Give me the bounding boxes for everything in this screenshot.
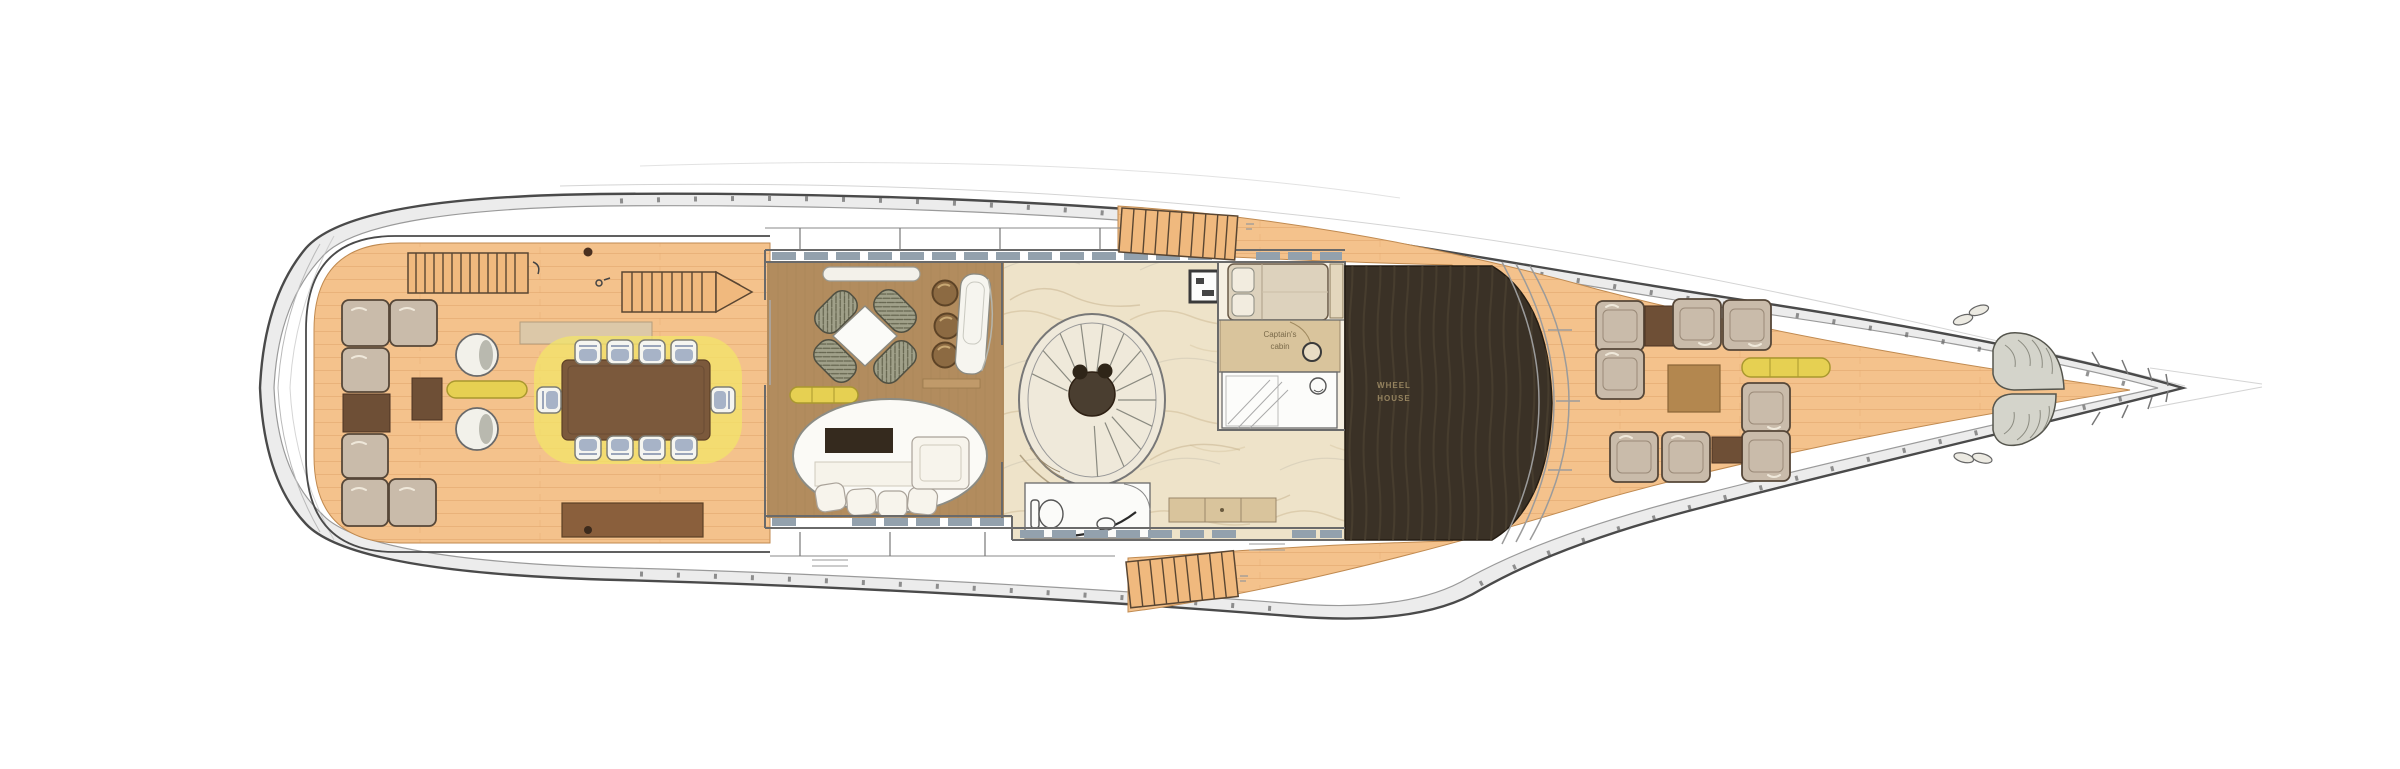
foredeck-yellow-bench [1742,358,1830,377]
sofa-connector-table [1712,437,1742,463]
aft-stairs-down [408,253,539,293]
yacht-deck-plan-page: Captain's cabin WHEEL HOUSE [0,0,2400,769]
foredeck-coffee-table [1668,365,1720,412]
captain-bed [1228,264,1328,320]
wheelhouse-label-2: HOUSE [1377,394,1410,403]
side-stairway-top [1119,208,1238,260]
captain-ensuite [1222,372,1337,428]
day-head [1025,483,1150,538]
captain-cabin-label-2: cabin [1270,342,1289,351]
captain-desk-area: Captain's cabin [1220,320,1340,372]
sofa-corner-table [343,394,390,432]
toilet-icon [1031,500,1063,528]
aft-round-chair [456,334,498,376]
aft-deck [306,236,770,552]
tv-cabinet [825,428,893,453]
dining-table [562,360,710,440]
aft-round-chair [456,408,498,450]
spiral-center-post [1069,372,1115,416]
wheelhouse-label-1: WHEEL [1377,381,1411,390]
aft-cabinet [562,503,703,537]
captain-cabin-label-1: Captain's [1263,330,1296,339]
electrical-panel [1190,271,1218,302]
captain-cabin: Captain's cabin [1218,262,1345,430]
wardrobe [1330,264,1343,318]
aft-dining-set [534,336,742,464]
lounge-shelf [923,379,980,388]
yacht-deck-plan: Captain's cabin WHEEL HOUSE [0,0,2400,769]
sofa-connector-table [1645,306,1673,346]
lounge-yellow-bench [790,387,858,403]
deck-fitting-dot [584,248,593,257]
spiral-staircase [1019,314,1165,486]
aft-side-table [412,378,442,420]
aft-yellow-bench [447,381,527,398]
desk-stool [1303,343,1321,361]
lounge-sideboard [823,267,920,281]
corridor-cabinet [1169,498,1276,522]
